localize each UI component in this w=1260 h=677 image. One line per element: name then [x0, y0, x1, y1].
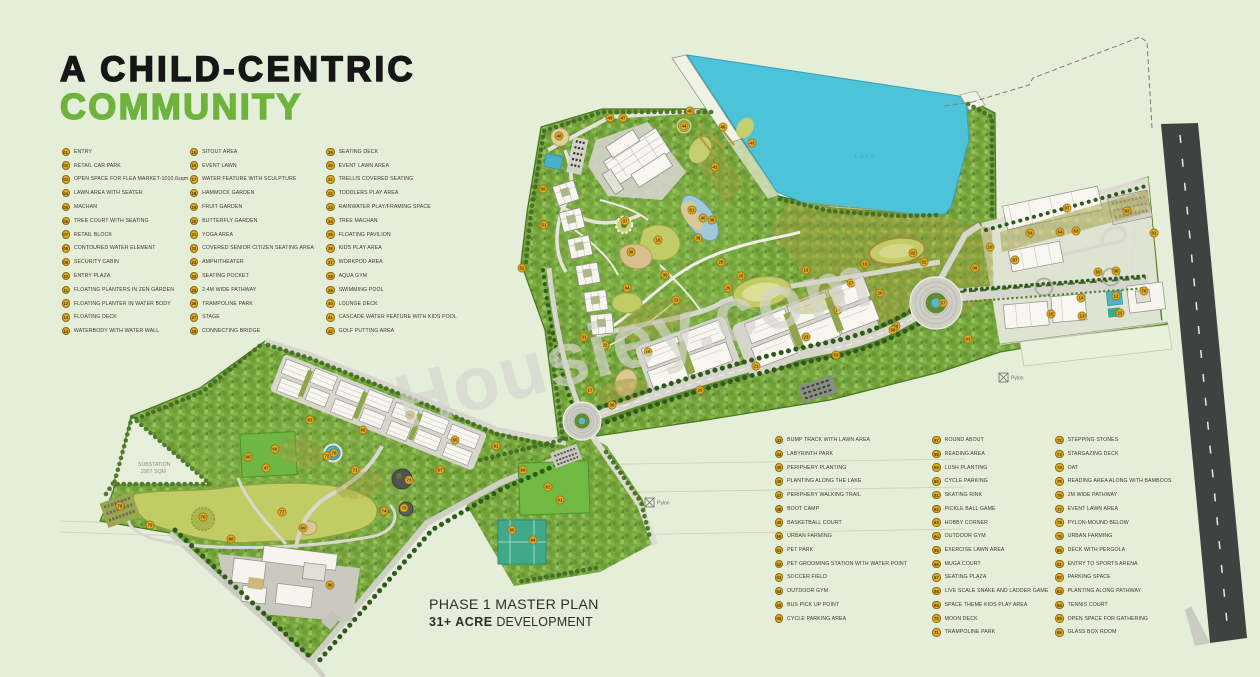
svg-text:10: 10	[988, 245, 993, 250]
svg-text:16: 16	[656, 238, 661, 243]
svg-text:72: 72	[325, 454, 330, 459]
svg-text:62: 62	[546, 485, 551, 490]
svg-text:82: 82	[1125, 209, 1130, 214]
svg-text:69: 69	[301, 526, 306, 531]
svg-text:70: 70	[332, 451, 337, 456]
svg-text:63: 63	[1074, 229, 1079, 234]
svg-text:LAKE: LAKE	[855, 154, 876, 160]
svg-text:78: 78	[118, 504, 123, 509]
svg-text:47: 47	[264, 466, 269, 471]
svg-text:42: 42	[713, 165, 718, 170]
svg-text:07: 07	[1065, 206, 1070, 211]
svg-text:73: 73	[407, 478, 412, 483]
svg-text:32: 32	[922, 260, 927, 265]
svg-text:50: 50	[541, 187, 546, 192]
svg-text:84: 84	[531, 538, 536, 543]
svg-text:49: 49	[608, 116, 613, 121]
svg-text:52: 52	[520, 266, 525, 271]
svg-text:67: 67	[438, 468, 443, 473]
svg-text:36: 36	[629, 250, 634, 255]
svg-text:61: 61	[690, 208, 695, 213]
svg-text:53: 53	[834, 353, 839, 358]
svg-text:11: 11	[1118, 311, 1123, 316]
svg-text:28: 28	[719, 260, 724, 265]
svg-text:20: 20	[878, 291, 883, 296]
svg-text:40: 40	[701, 216, 706, 221]
svg-text:68: 68	[246, 455, 251, 460]
svg-text:45: 45	[688, 109, 693, 114]
svg-text:51: 51	[542, 223, 547, 228]
svg-text:66: 66	[521, 468, 526, 473]
svg-text:09: 09	[973, 266, 978, 271]
svg-text:13: 13	[1080, 314, 1085, 319]
svg-text:61: 61	[558, 498, 563, 503]
svg-text:58: 58	[891, 328, 896, 333]
svg-text:47: 47	[621, 116, 626, 121]
svg-text:64: 64	[1058, 230, 1063, 235]
svg-text:57: 57	[941, 301, 946, 306]
svg-text:Pylon: Pylon	[657, 501, 670, 507]
svg-text:44: 44	[682, 124, 687, 129]
svg-text:80: 80	[229, 537, 234, 542]
svg-text:63: 63	[308, 418, 313, 423]
svg-text:35: 35	[663, 273, 668, 278]
svg-text:02: 02	[911, 251, 916, 256]
svg-text:86: 86	[328, 583, 333, 588]
svg-text:66: 66	[273, 447, 278, 452]
svg-text:30: 30	[610, 403, 615, 408]
svg-text:60: 60	[1096, 270, 1101, 275]
svg-text:65: 65	[361, 428, 366, 433]
svg-text:55: 55	[453, 438, 458, 443]
svg-text:81: 81	[494, 444, 499, 449]
svg-text:2907 SQM: 2907 SQM	[141, 469, 166, 475]
svg-text:43: 43	[750, 141, 755, 146]
svg-text:79: 79	[148, 523, 153, 528]
svg-text:03: 03	[966, 337, 971, 342]
svg-text:Pylon: Pylon	[1011, 376, 1024, 382]
svg-text:34: 34	[625, 286, 630, 291]
svg-text:87: 87	[1013, 258, 1018, 263]
svg-text:71: 71	[353, 468, 358, 473]
svg-text:77: 77	[280, 510, 285, 515]
svg-text:48: 48	[557, 134, 562, 139]
svg-text:54: 54	[1028, 231, 1033, 236]
svg-text:21: 21	[754, 364, 759, 369]
svg-text:38: 38	[696, 236, 701, 241]
svg-text:01: 01	[1152, 231, 1157, 236]
svg-text:08: 08	[1114, 269, 1119, 274]
svg-text:75: 75	[402, 506, 407, 511]
svg-text:76: 76	[1142, 289, 1147, 294]
svg-text:15: 15	[1049, 312, 1054, 317]
svg-text:85: 85	[510, 528, 515, 533]
svg-text:39: 39	[710, 218, 715, 223]
svg-text:14: 14	[1079, 296, 1084, 301]
svg-text:12: 12	[1114, 294, 1119, 299]
svg-text:SUBSTATION: SUBSTATION	[138, 462, 171, 468]
svg-text:76: 76	[201, 515, 206, 520]
svg-text:37: 37	[623, 219, 628, 224]
svg-text:26: 26	[698, 388, 703, 393]
svg-text:74: 74	[382, 509, 387, 514]
svg-text:46: 46	[721, 125, 726, 130]
